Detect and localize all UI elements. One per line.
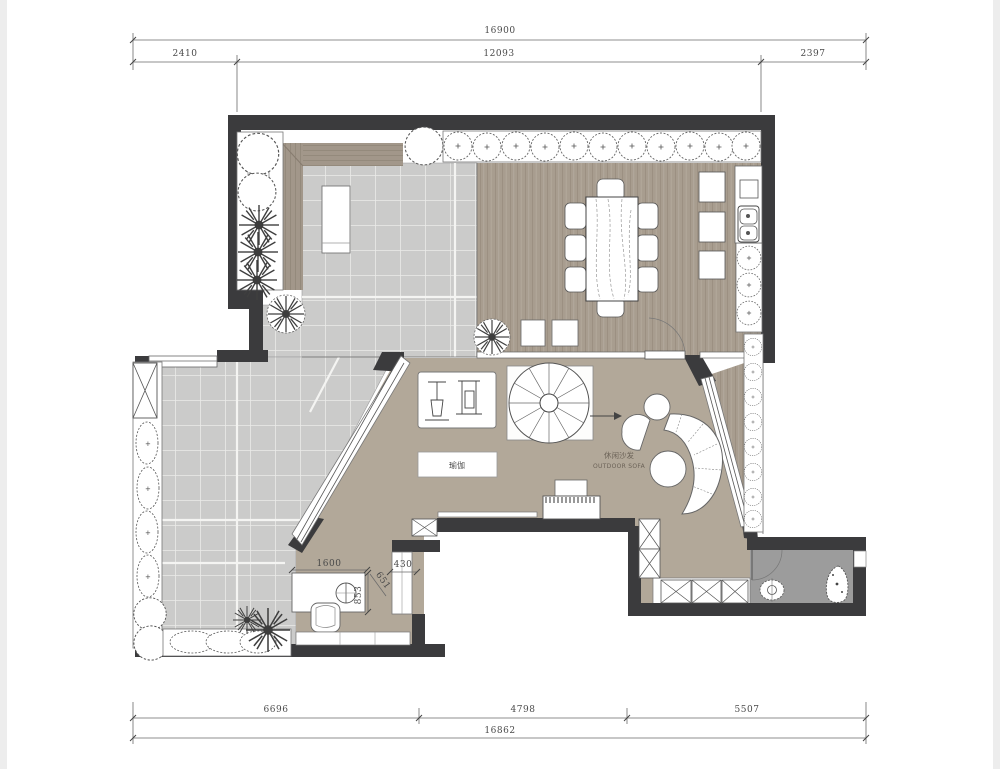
yoga-mat: 瑜伽 (418, 452, 497, 477)
wall-living-bottom (437, 518, 635, 532)
pouf-icon (644, 394, 670, 420)
svg-text:+: + (145, 529, 151, 537)
sofa-label-cn: 休闲沙发 (604, 450, 634, 460)
sink-icon (735, 166, 762, 243)
wall-bottom-right (628, 603, 866, 616)
sofa-label-en: OUTDOOR SOFA (593, 463, 646, 470)
deck-border-left (282, 143, 303, 290)
wall-seg-terrace (217, 350, 268, 362)
dim-top-seg-2: 12093 (483, 49, 514, 59)
wall-step-2 (249, 288, 263, 352)
dim-door-width: 430 (394, 560, 413, 570)
svg-text:+: + (145, 440, 151, 448)
dim-bottom-total: 16862 (484, 726, 515, 736)
dim-top-seg-3: 2397 (801, 49, 826, 59)
wall-right-upper (761, 115, 775, 363)
dim-vanity-depth: 853 (354, 586, 364, 605)
svg-text:+: + (145, 573, 151, 581)
wall-bath-top (392, 540, 440, 552)
page-edge-right (993, 0, 1000, 769)
cabinet-icon (699, 172, 725, 279)
yoga-label: 瑜伽 (449, 460, 465, 470)
dim-bottom-seg-3: 5507 (735, 705, 760, 715)
cushion-icon (521, 320, 545, 346)
column-icon (133, 363, 157, 418)
dim-vanity-width: 1600 (317, 559, 342, 569)
dim-bottom-seg-2: 4798 (511, 705, 536, 715)
wall-rightroom-top (747, 537, 866, 550)
floor-plan-drawing: ++++ (0, 0, 1000, 769)
floor-plan-page: ++++ (0, 0, 1000, 769)
wall-bath-right (412, 614, 425, 650)
armchair-icon (311, 603, 340, 632)
cushion-icon (552, 320, 578, 346)
bench-icon (296, 632, 410, 645)
gym-equipment-icon (418, 372, 496, 428)
page-edge-left (0, 0, 7, 769)
wall-top (228, 115, 775, 130)
svg-text:+: + (145, 485, 151, 493)
pouf-icon (650, 451, 686, 487)
dim-top-total: 16900 (484, 26, 515, 36)
dim-top-seg-1: 2410 (173, 49, 198, 59)
dim-bottom-seg-1: 6696 (264, 705, 289, 715)
